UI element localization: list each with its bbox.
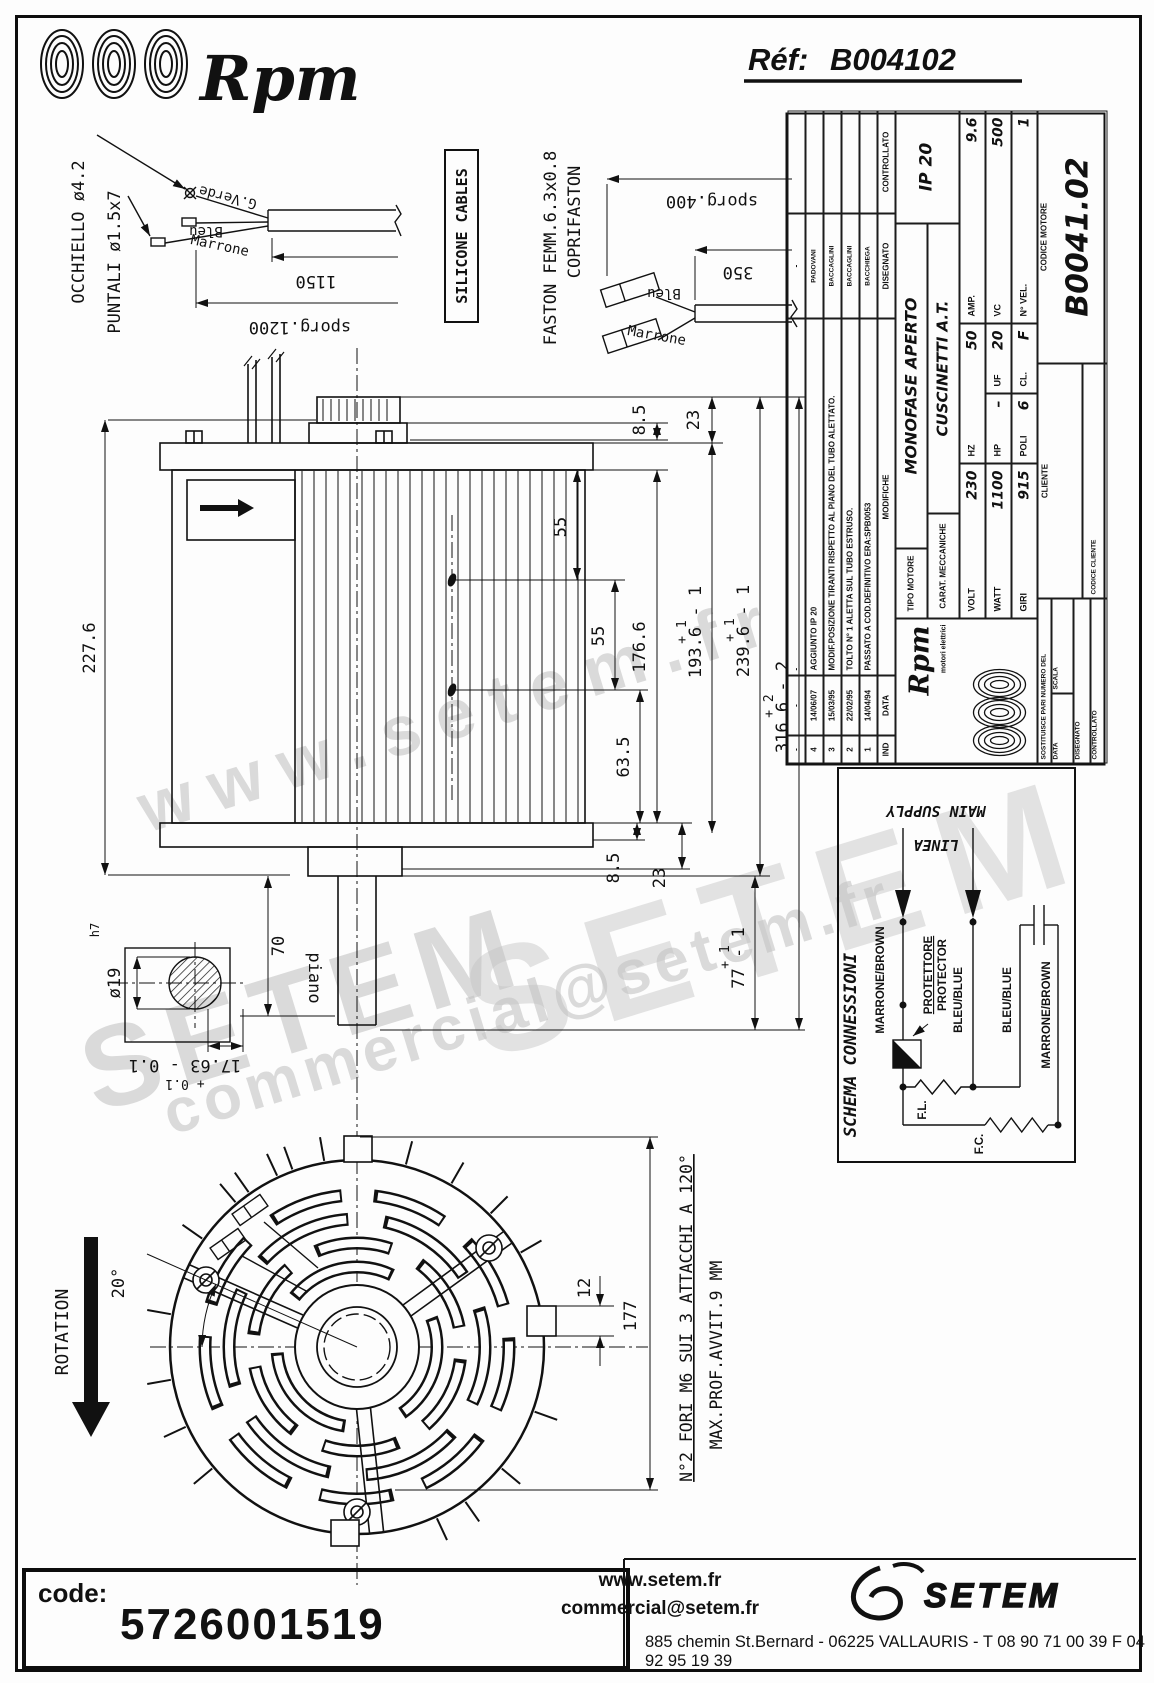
brand-text: Rpm	[198, 42, 360, 115]
volt-value: 230	[965, 470, 980, 499]
vc-cell: VC500	[985, 110, 1011, 323]
rev-by: BACCAGLINI	[823, 213, 841, 318]
poli-cell: POLI6	[1011, 393, 1037, 463]
rev-ind: 4	[805, 735, 823, 763]
dim-17-63-tol: + 0.1	[165, 1076, 204, 1091]
dim-55-b: 55	[589, 626, 609, 646]
schema-fc: F.C.	[974, 1134, 986, 1154]
motor-front-view	[72, 1136, 658, 1546]
label-h7: h7	[88, 923, 102, 937]
rev-desc: PASSATO A COD.DEFINITIVO ERA:SPB0053	[859, 318, 877, 675]
dim-8-5-bot: 8.5	[604, 853, 624, 884]
cable-detail	[97, 135, 401, 308]
cl-label: CL.	[1019, 372, 1028, 387]
rev-date: -	[787, 675, 805, 735]
rotation-arrow-icon	[72, 1237, 110, 1437]
volt-label: VOLT	[967, 588, 976, 611]
footer-website: www.setem.fr	[500, 1570, 820, 1592]
uf-label: UF	[993, 374, 1002, 386]
tipo-motore-value: MONOFASE APERTO	[895, 223, 927, 548]
carat-meccaniche-label: CARAT. MECCANICHE	[927, 513, 959, 618]
dim-77: 77 - 1	[729, 927, 749, 988]
cl-value: F	[1017, 330, 1032, 340]
label-piano: piano	[304, 952, 324, 1003]
nvel-cell: N° VEL.1	[1011, 110, 1037, 323]
setem-logo: SETEM	[853, 1564, 1061, 1618]
hp-cell: HP–	[985, 393, 1011, 463]
dim-177: 177	[621, 1301, 641, 1332]
shaft-section-detail	[125, 948, 243, 1052]
schema-title: SCHEMA CONNESSIONI	[841, 952, 861, 1137]
dim-350: 350	[723, 262, 754, 282]
dim-23-bot: 23	[650, 868, 670, 888]
dim-sporg-1200: sporg.1200	[249, 317, 351, 337]
rev-ind: 3	[823, 735, 841, 763]
dim-55-a: 55	[551, 517, 571, 537]
tb-rpm-logo: Rpm motori elettrici	[895, 618, 1037, 763]
tb-coil-icon	[970, 666, 1028, 758]
rev-desc: TOLTO N° 1 ALETTA SUL TUBO ESTRUSO.	[841, 318, 859, 675]
schema-marrone-brown-2: MARRONE/BROWN	[1041, 961, 1053, 1068]
sostituisce-label: SOSTITUISCE PARI NUMERO DEL	[1037, 598, 1051, 763]
rev-date: 14/06/07	[805, 675, 823, 735]
codice-motore-value: B0041.02	[1062, 157, 1094, 317]
footer-email: commercial@setem.fr	[500, 1598, 820, 1620]
nvel-label: N° VEL.	[1019, 283, 1028, 316]
dim-1150: 1150	[296, 271, 337, 291]
rev-ind: 2	[841, 735, 859, 763]
schema-bleu-blue-2: BLEU/BLUE	[1002, 967, 1014, 1033]
rev-by: PADOVANI	[805, 213, 823, 318]
uf-value: 20	[991, 330, 1006, 349]
connection-schema	[838, 768, 1075, 1162]
hp-label: HP	[993, 443, 1002, 456]
faston-marrone-label: Marrone	[626, 323, 687, 349]
rev-date: 14/04/94	[859, 675, 877, 735]
schema-protector: PROTECTOR	[937, 938, 949, 1011]
code-value: 5726001519	[120, 1600, 385, 1650]
scala-label: SCALA	[1051, 598, 1073, 693]
hz-label: HZ	[967, 444, 976, 456]
dim-23-top: 23	[684, 410, 704, 430]
watt-value: 1100	[991, 470, 1006, 509]
rev-date: 22/02/95	[841, 675, 859, 735]
rev-ind: -	[787, 735, 805, 763]
schema-main-supply: MAIN SUPPLY	[885, 802, 986, 820]
dim-193-6: 193.6 - 1	[686, 586, 706, 678]
rev-ctrl	[805, 110, 823, 213]
schema-fl: F.L.	[917, 1100, 929, 1119]
codice-motore-label: CODICE MOTORE	[1040, 111, 1048, 362]
rev-header-data: DATA	[877, 675, 895, 735]
side-view-dimensions	[105, 397, 805, 1030]
disegnato-label: DISEGNATO	[1073, 598, 1090, 763]
dim-63-5: 63.5	[614, 737, 634, 778]
cl-cell: CL.F	[1011, 323, 1037, 393]
codice-cliente-cell: CODICE CLIENTE	[1082, 363, 1107, 598]
dim-176-6: 176.6	[630, 621, 650, 672]
faston-bleu-label: Bleu	[647, 285, 681, 301]
volt-cell: VOLT230	[959, 463, 985, 618]
giri-value: 915	[1017, 470, 1032, 499]
header-logo-coils-icon	[41, 30, 187, 98]
hp-value: –	[991, 400, 1006, 407]
title-block: - - - - 4 14/06/07 AGGIUNTO IP 20 PADOVA…	[785, 112, 1105, 765]
poli-label: POLI	[1019, 435, 1028, 456]
dim-8-5-top: 8.5	[630, 405, 650, 436]
schema-bleu-blue-1: BLEU/BLUE	[953, 967, 965, 1033]
label-puntali: PUNTALI ø1.5x7	[105, 190, 125, 333]
ref-value: B004102	[830, 42, 956, 77]
label-occhiello: OCCHIELLO ø4.2	[69, 160, 89, 303]
rev-by: -	[787, 213, 805, 318]
rev-ctrl	[841, 110, 859, 213]
label-coprifaston: COPRIFASTON	[565, 166, 585, 279]
hz-cell: HZ50	[959, 323, 985, 463]
rev-ctrl	[787, 110, 805, 213]
motor-side-view	[160, 349, 593, 1025]
rev-date: 15/03/95	[823, 675, 841, 735]
tb-rpm-brand: Rpm	[906, 625, 934, 695]
cliente-cell: CLIENTE	[1037, 363, 1082, 598]
amp-value: 9.6	[965, 117, 980, 142]
rev-header-disegnato: DISEGNATO	[877, 213, 895, 318]
data-label: DATA	[1051, 693, 1073, 763]
drawing-sheet: www.setem.fr SETEM SETEM commercial@sete…	[0, 0, 1154, 1683]
code-label: code:	[38, 1578, 107, 1609]
tb-rpm-sub: motori elettrici	[940, 624, 947, 673]
note-holes: N°2 FORI M6 SUI 3 ATTACCHI A 120°	[677, 1154, 696, 1482]
rev-ctrl	[859, 110, 877, 213]
vc-value: 500	[991, 117, 1006, 146]
note-depth: MAX.PROF.AVVIT.9 MM	[707, 1261, 726, 1450]
giri-cell: GIRI915	[1011, 463, 1037, 618]
controllato-label: CONTROLLATO	[1090, 598, 1107, 763]
rev-header-modifiche: MODIFICHE	[877, 318, 895, 675]
giri-label: GIRI	[1019, 592, 1028, 611]
hz-value: 50	[965, 330, 980, 349]
dim-20deg: 20°	[109, 1268, 129, 1299]
setem-logo-text: SETEM	[924, 1577, 1061, 1615]
vc-label: VC	[993, 303, 1002, 316]
dim-12: 12	[575, 1278, 595, 1298]
rev-header-controllato: CONTROLLATO	[877, 110, 895, 213]
amp-label: AMP.	[967, 295, 976, 316]
rev-by: BACCHIEGA	[859, 213, 877, 318]
rev-by: BACCAGLINI	[841, 213, 859, 318]
dim-70: 70	[269, 936, 289, 956]
rev-desc: MODIF.POSIZIONE TIRANTI RISPETTO AL PIAN…	[823, 318, 841, 675]
dim-239-6: 239.6 - 1	[734, 585, 754, 677]
watt-label: WATT	[993, 586, 1002, 611]
nvel-value: 1	[1017, 117, 1032, 127]
amp-cell: AMP.9.6	[959, 110, 985, 323]
silicone-cables-label: SILICONE CABLES	[453, 168, 471, 303]
carat-meccaniche-value: CUSCINETTI A.T.	[927, 223, 959, 513]
dim-17-63: 17.63 - 0.1	[129, 1055, 242, 1075]
footer-address: 885 chemin St.Bernard - 06225 VALLAURIS …	[645, 1633, 1154, 1671]
codice-motore-cell: CODICE MOTORE B0041.02	[1037, 110, 1107, 363]
schema-linea: LINEA	[913, 836, 958, 854]
rev-header-ind: IND	[877, 735, 895, 763]
ip-value: IP 20	[895, 110, 959, 223]
schema-marrone-brown-1: MARRONE/BROWN	[875, 926, 887, 1033]
dim-227: 227.6	[80, 622, 100, 673]
rev-ctrl	[823, 110, 841, 213]
dim-sporg-400: sporg.400	[666, 191, 758, 211]
wire-gverde-label: G.Verde	[197, 182, 258, 212]
watt-cell: WATT1100	[985, 463, 1011, 618]
tipo-motore-label: TIPO MOTORE	[895, 548, 927, 618]
rev-desc: AGGIUNTO IP 20	[805, 318, 823, 675]
poli-value: 6	[1017, 400, 1032, 410]
label-rotation: ROTATION	[52, 1289, 73, 1376]
uf-cell: UF20	[985, 323, 1011, 393]
schema-protettore: PROTETTORE	[923, 935, 935, 1014]
rev-desc: -	[787, 318, 805, 675]
ref-label: Réf:	[748, 42, 808, 77]
rev-ind: 1	[859, 735, 877, 763]
label-faston: FASTON FEMM.6.3x0.8	[541, 151, 561, 345]
